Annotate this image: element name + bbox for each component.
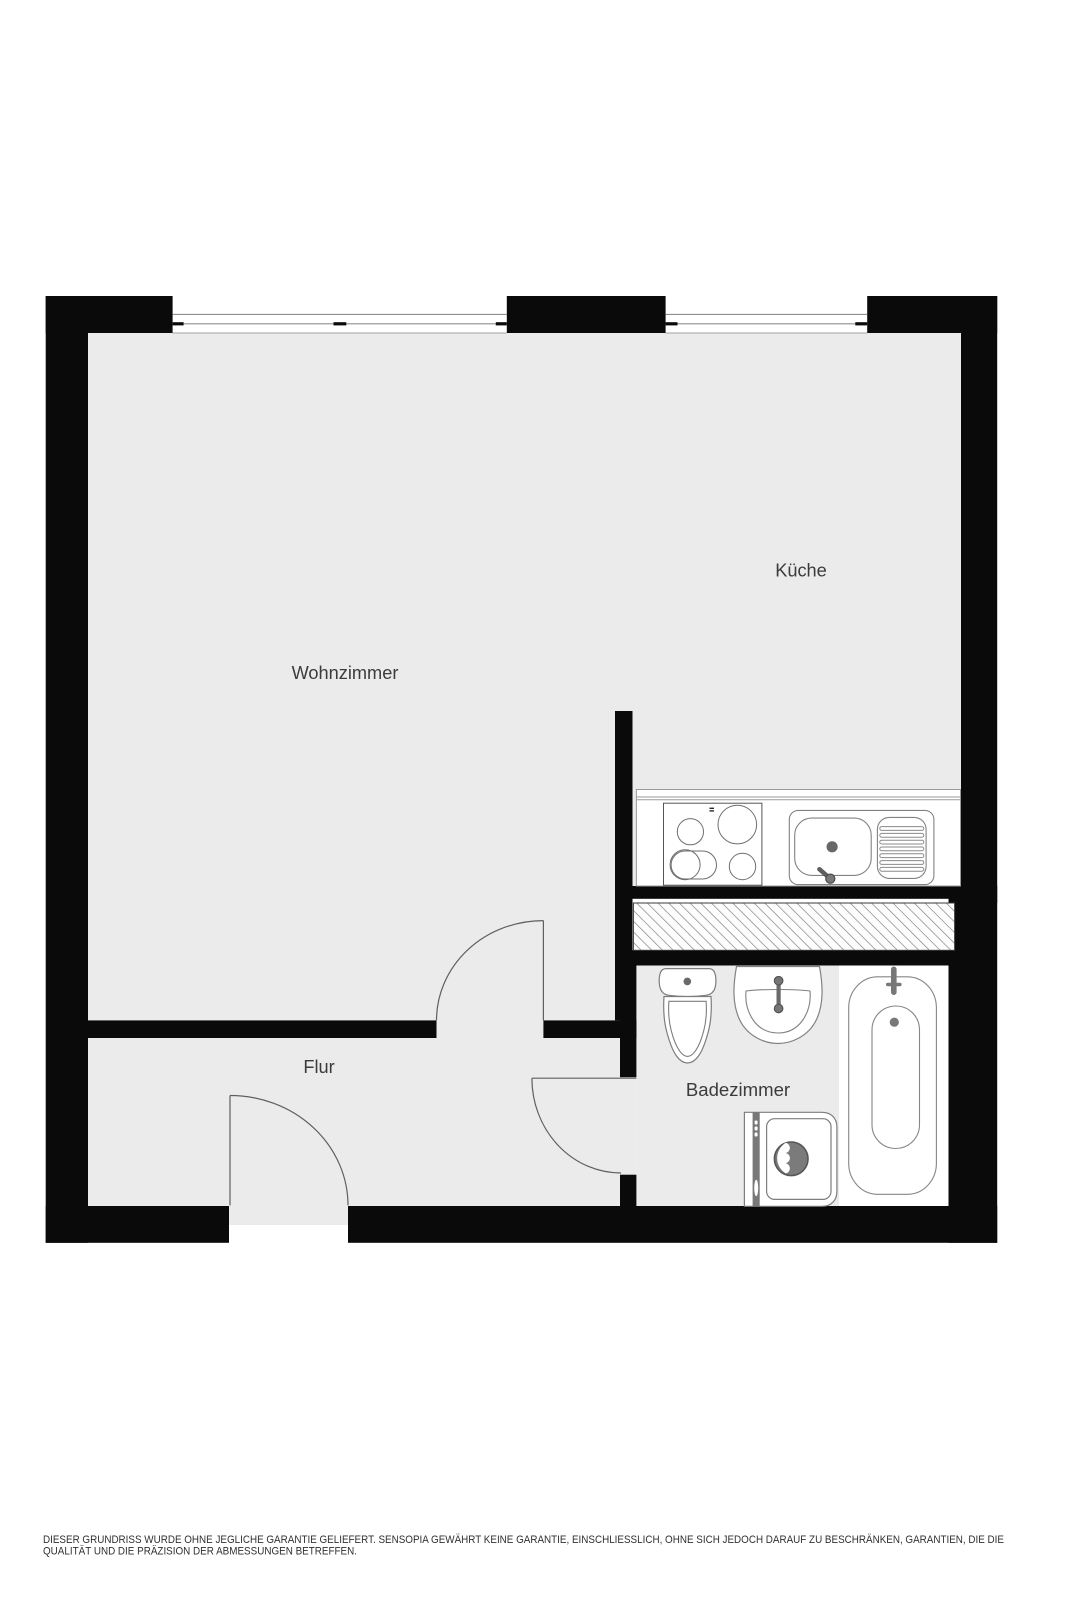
svg-text:Badezimmer: Badezimmer <box>686 1080 790 1100</box>
svg-text:DIESER GRUNDRISS WURDE OHNE JE: DIESER GRUNDRISS WURDE OHNE JEGLICHE GAR… <box>43 1534 1004 1546</box>
svg-text:Küche: Küche <box>775 561 827 581</box>
svg-text:Wohnzimmer: Wohnzimmer <box>292 663 399 683</box>
svg-text:QUALITÄT UND DIE PRÄZISION DER: QUALITÄT UND DIE PRÄZISION DER ABMESSUNG… <box>43 1546 357 1558</box>
svg-text:Flur: Flur <box>303 1057 334 1077</box>
